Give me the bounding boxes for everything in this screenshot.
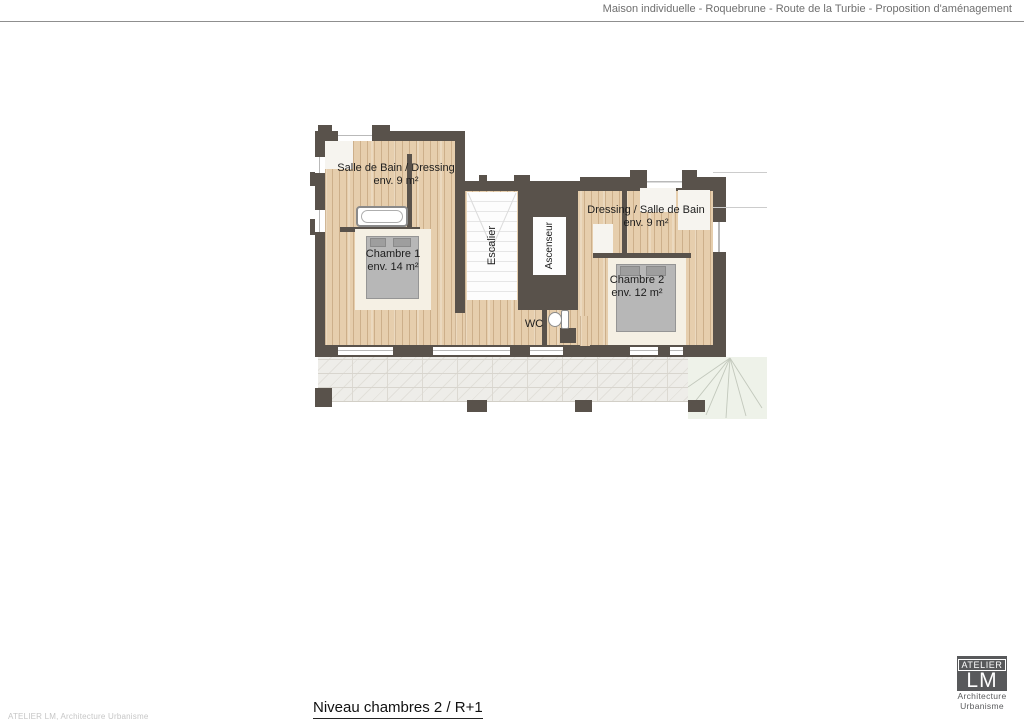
studio-credit: ATELIER LM, Architecture Urbanisme [8,712,148,721]
reference-line [713,172,767,173]
logo-initials: LM [966,671,997,691]
logo-subtitle-architecture: Architecture [957,692,1007,701]
wall-pier [682,170,697,177]
logo-subtitle-urbanisme: Urbanisme [957,702,1007,711]
atelier-lm-logo: ATELIER LM Architecture Urbanisme [957,656,1007,711]
window-bottom-2 [433,347,510,355]
bed1-pillow-right [393,238,411,247]
toilet-bowl [548,312,562,327]
window-top-left [338,131,372,141]
column-post [688,400,705,412]
wall-pier [514,175,530,181]
column-post [575,400,592,412]
elevator-label: Ascenseur [544,222,555,269]
reference-line [713,207,767,208]
room-name: Dressing / Salle de Bain [581,204,711,217]
room-label-bedroom1: Chambre 1 env. 14 m² [343,248,443,274]
window-bottom-1 [338,347,393,355]
wall-pier [630,170,647,177]
window-top-right [647,177,682,188]
room-label-bedroom2: Chambre 2 env. 12 m² [582,274,692,300]
room-area: env. 9 m² [331,175,461,188]
stairs-label: Escalier [486,226,498,265]
elevator-car: Ascenseur [533,217,566,275]
room-area: env. 12 m² [582,287,692,300]
wall-pier [318,125,332,131]
door-opening-bedroom1 [455,313,465,345]
bathtub [356,206,408,227]
wc-label: WC [519,318,549,331]
room-area: env. 14 m² [343,261,443,274]
wall-pier [372,125,390,131]
wall-pier [310,219,315,235]
room-label-bath1: Salle de Bain / Dressing env. 9 m² [331,162,461,188]
room-name: Chambre 1 [343,248,443,261]
door-opening-bedroom2 [580,316,590,346]
room-name: Chambre 2 [582,274,692,287]
logo-square: ATELIER LM [957,656,1007,691]
toilet-tank [561,310,569,329]
window-bottom-3 [530,347,563,355]
wall-pier [479,175,487,181]
wall-pier [310,172,315,186]
toilet [548,310,570,330]
room-label-bath2: Dressing / Salle de Bain env. 9 m² [581,204,711,230]
room-area: env. 9 m² [581,217,711,230]
window-left-lower [315,210,325,232]
window-right [713,222,726,252]
wc-step [560,328,576,343]
level-title: Niveau chambres 2 / R+1 [313,699,483,719]
terrace-stone-paving [318,357,688,402]
bathtub-basin [361,210,403,223]
column-post [467,400,487,412]
page: { "header": { "title": "Maison individue… [0,0,1024,726]
floor-plan: Escalier Ascenseur WC Salle de Bain [315,124,770,420]
header-divider [0,21,1024,22]
terrace-corner-pillar [315,388,332,407]
drawing-title: Maison individuelle - Roquebrune - Route… [603,3,1012,15]
bed1-pillow-left [370,238,386,247]
window-bottom-5 [670,347,683,355]
room-name: Salle de Bain / Dressing [331,162,461,175]
stairs-room: Escalier [467,192,517,300]
window-bottom-4 [630,347,658,355]
window-left-upper [315,157,325,173]
